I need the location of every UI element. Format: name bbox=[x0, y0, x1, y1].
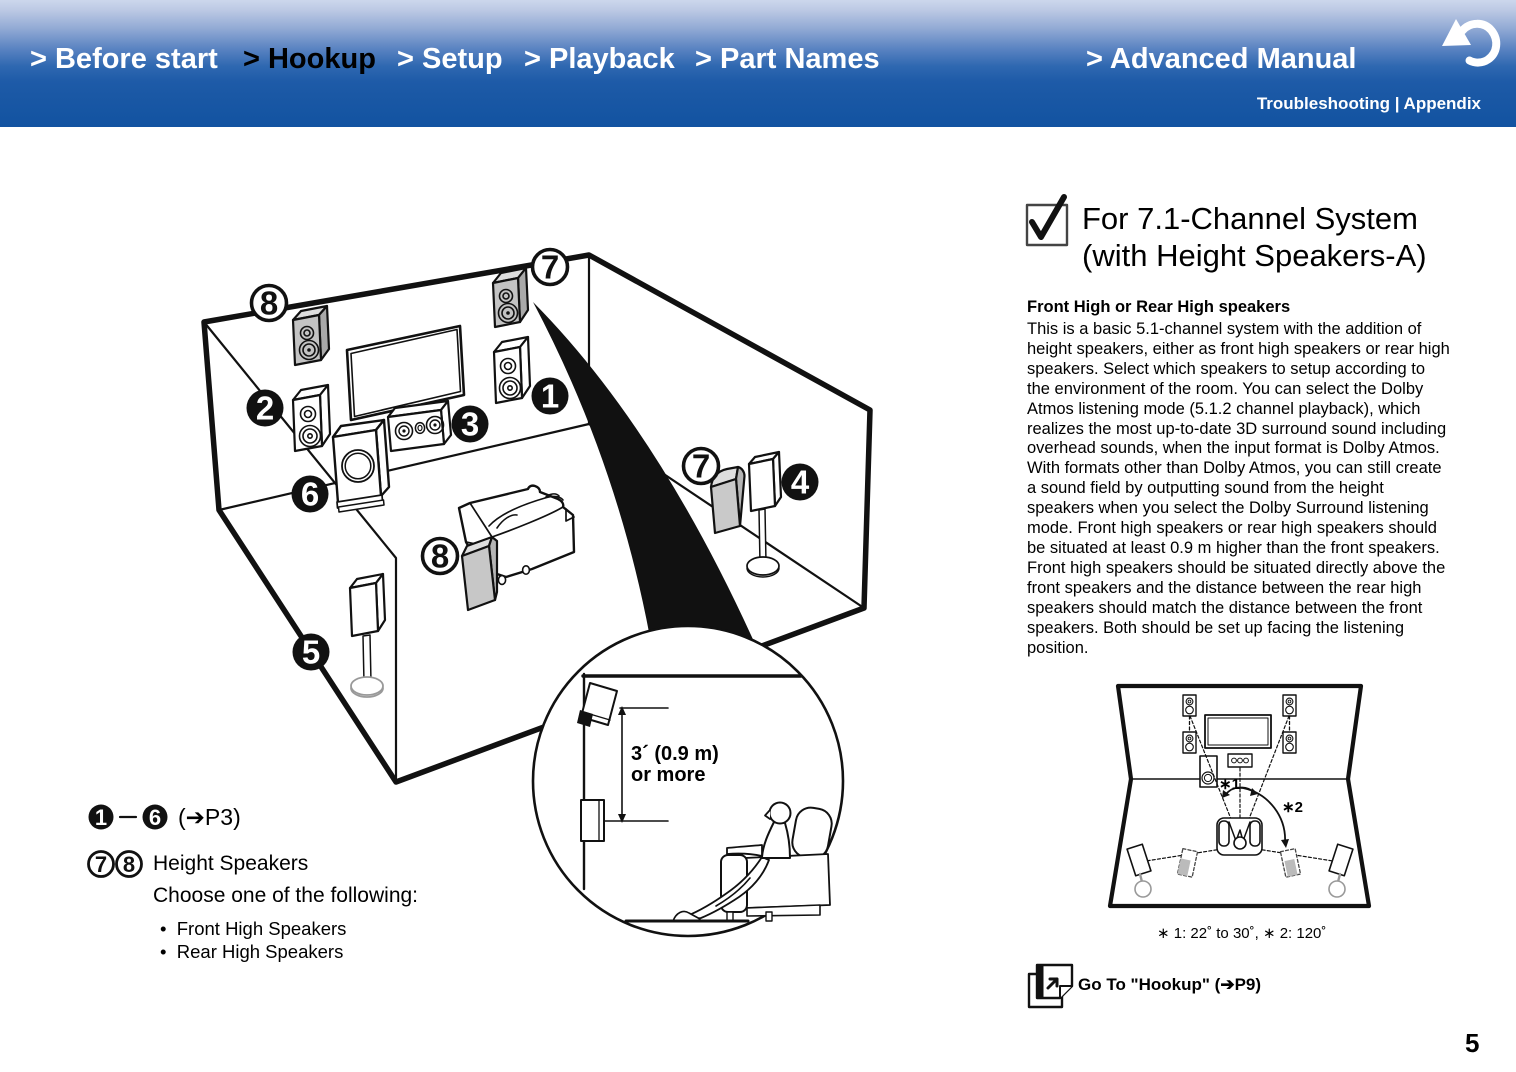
svg-text:1: 1 bbox=[541, 378, 559, 415]
svg-text:∗2: ∗2 bbox=[1282, 799, 1303, 816]
svg-text:6: 6 bbox=[149, 805, 161, 830]
svg-text:5: 5 bbox=[302, 634, 320, 671]
svg-text:7: 7 bbox=[95, 852, 107, 877]
svg-text:2: 2 bbox=[256, 390, 274, 427]
svg-text:3´ (0.9 m): 3´ (0.9 m) bbox=[631, 743, 719, 765]
svg-text:∗1: ∗1 bbox=[1219, 776, 1240, 793]
svg-text:1: 1 bbox=[95, 805, 107, 830]
svg-text:3: 3 bbox=[461, 406, 479, 443]
svg-text:7: 7 bbox=[692, 448, 710, 485]
svg-text:8: 8 bbox=[123, 852, 135, 877]
svg-text:6: 6 bbox=[301, 476, 319, 513]
svg-text:7: 7 bbox=[541, 249, 559, 286]
svg-text:4: 4 bbox=[791, 464, 810, 501]
svg-text:8: 8 bbox=[431, 538, 449, 575]
svg-text:8: 8 bbox=[260, 285, 278, 322]
svg-text:or more: or more bbox=[631, 764, 705, 786]
